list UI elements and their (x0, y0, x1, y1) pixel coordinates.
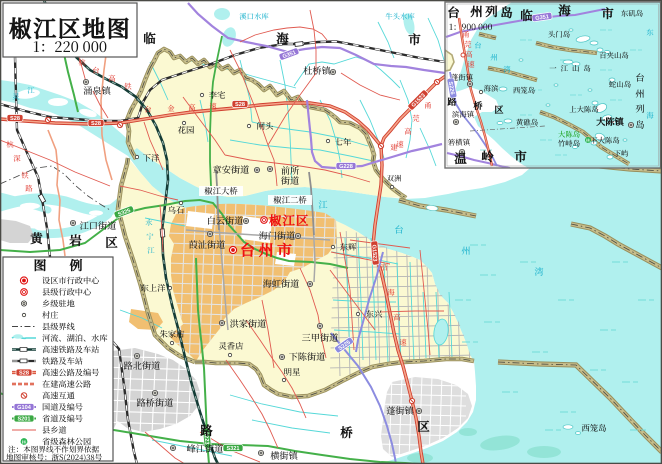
svg-text:三甲街道: 三甲街道 (302, 330, 339, 344)
svg-text:杭: 杭 (78, 57, 86, 68)
svg-text:箬横镇: 箬横镇 (448, 137, 471, 148)
svg-text:地图审核号：浙S(2024)38号: 地图审核号：浙S(2024)38号 (6, 452, 103, 463)
svg-text:在建高速公路: 在建高速公路 (42, 379, 91, 390)
svg-text:灵香店: 灵香店 (218, 340, 244, 352)
svg-text:黄: 黄 (30, 229, 44, 247)
svg-text:海: 海 (276, 29, 290, 47)
svg-text:G228: G228 (339, 164, 353, 170)
svg-text:椒江区: 椒江区 (269, 211, 310, 229)
svg-text:横街镇: 横街镇 (270, 448, 298, 462)
svg-text:甬: 甬 (424, 100, 431, 111)
svg-text:海滨: 海滨 (484, 83, 499, 94)
svg-text:大陈镇: 大陈镇 (596, 114, 624, 128)
svg-text:白云街道: 白云街道 (207, 213, 244, 227)
svg-text:上大陈岛: 上大陈岛 (569, 104, 599, 115)
svg-text:S201: S201 (17, 417, 30, 423)
svg-text:高: 高 (404, 126, 412, 137)
svg-text:李宅: 李宅 (209, 89, 226, 101)
svg-text:蛇山岛: 蛇山岛 (609, 79, 631, 90)
svg-text:S28: S28 (91, 121, 101, 127)
svg-text:永: 永 (145, 217, 153, 228)
svg-text:花园: 花园 (178, 124, 195, 136)
svg-text:金: 金 (167, 103, 175, 114)
svg-text:下洋: 下洋 (143, 152, 160, 164)
svg-text:下屿: 下屿 (614, 148, 629, 159)
svg-text:东: 东 (646, 27, 654, 38)
svg-text:头门岛: 头门岛 (548, 29, 570, 40)
svg-text:列: 列 (635, 101, 644, 115)
svg-text:桥: 桥 (473, 98, 483, 112)
svg-text:高速铁路及车站: 高速铁路及车站 (42, 345, 99, 356)
svg-text:下大陈岛: 下大陈岛 (590, 135, 620, 146)
svg-text:七年: 七年 (335, 136, 352, 148)
svg-text:海虹街道: 海虹街道 (263, 276, 300, 290)
svg-text:S28: S28 (10, 116, 20, 122)
svg-text:岛: 岛 (635, 117, 644, 131)
svg-text:宁: 宁 (146, 231, 154, 242)
svg-text:速: 速 (399, 337, 407, 348)
svg-text:设区市行政中心: 设区市行政中心 (42, 276, 99, 287)
svg-text:葭沚街道: 葭沚街道 (189, 237, 226, 251)
svg-text:江: 江 (27, 85, 35, 96)
svg-text:高速互通: 高速互通 (42, 391, 75, 402)
svg-text:下陈街道: 下陈街道 (289, 349, 326, 363)
svg-text:1：900 000: 1：900 000 (449, 21, 493, 33)
svg-text:台: 台 (635, 70, 644, 84)
svg-text:海: 海 (646, 110, 654, 121)
svg-text:1：220 000: 1：220 000 (33, 36, 107, 57)
svg-text:湾: 湾 (534, 264, 543, 278)
svg-text:江: 江 (147, 245, 155, 256)
svg-text:闸头: 闸头 (257, 120, 274, 132)
svg-text:西笼岛: 西笼岛 (581, 422, 606, 434)
svg-text:江口街道: 江口街道 (80, 218, 117, 232)
svg-text:峰江街道: 峰江街道 (187, 441, 224, 455)
svg-text:涌泉镇: 涌泉镇 (83, 83, 111, 97)
svg-text:湾: 湾 (503, 64, 511, 75)
svg-text:S321: S321 (226, 446, 239, 452)
svg-text:高: 高 (393, 312, 401, 323)
svg-text:州: 州 (461, 243, 470, 257)
svg-text:东矶岛: 东矶岛 (621, 8, 643, 19)
svg-text:S28: S28 (235, 102, 245, 108)
svg-text:省道及编号: 省道及编号 (42, 414, 83, 425)
svg-text:温: 温 (454, 149, 468, 167)
svg-text:速: 速 (209, 101, 217, 112)
svg-text:蓬街镇: 蓬街镇 (386, 403, 414, 417)
svg-text:台: 台 (92, 65, 99, 76)
svg-text:临: 临 (520, 6, 534, 24)
svg-text:G1523: G1523 (370, 244, 377, 261)
svg-text:一江山岛: 一江山岛 (549, 63, 595, 74)
svg-text:县乡道: 县乡道 (42, 425, 67, 436)
svg-text:椒江大桥: 椒江大桥 (204, 185, 238, 197)
svg-text:区: 区 (494, 102, 504, 116)
svg-text:高: 高 (108, 73, 116, 84)
svg-text:乌石: 乌石 (168, 204, 185, 216)
svg-text:临: 临 (143, 29, 157, 47)
svg-text:台: 台 (474, 40, 481, 51)
svg-text:图: 图 (33, 255, 46, 274)
svg-text:区: 区 (105, 233, 119, 251)
svg-text:高速公路及编号: 高速公路及编号 (42, 368, 99, 379)
svg-text:河流、湖泊、水库: 河流、湖泊、水库 (42, 333, 108, 344)
svg-text:台: 台 (144, 104, 151, 115)
svg-text:竹峙岛: 竹峙岛 (558, 138, 580, 149)
svg-text:海: 海 (387, 287, 395, 298)
svg-text:州: 州 (635, 86, 644, 100)
svg-text:铁路及车站: 铁路及车站 (42, 356, 83, 367)
svg-text:莞: 莞 (412, 113, 420, 124)
svg-text:G104: G104 (17, 405, 32, 411)
svg-text:乡级驻地: 乡级驻地 (42, 299, 75, 310)
svg-text:街道: 街道 (281, 173, 299, 187)
svg-text:村庄: 村庄 (42, 310, 58, 321)
svg-text:杭: 杭 (6, 139, 14, 150)
svg-text:海: 海 (558, 1, 572, 19)
svg-text:西笼岛: 西笼岛 (513, 85, 535, 96)
svg-text:例: 例 (68, 255, 82, 274)
svg-text:黄礁岛: 黄礁岛 (516, 117, 538, 128)
svg-text:县级界线: 县级界线 (42, 322, 76, 333)
svg-text:深: 深 (13, 153, 21, 164)
svg-text:列: 列 (485, 2, 499, 20)
svg-text:州: 州 (490, 52, 497, 63)
svg-text:滨海镇: 滨海镇 (452, 109, 475, 120)
svg-text:章安街道: 章安街道 (213, 162, 250, 176)
svg-text:市: 市 (601, 4, 615, 22)
svg-text:国道及编号: 国道及编号 (42, 402, 83, 413)
svg-text:市: 市 (408, 30, 422, 48)
svg-text:台: 台 (394, 222, 403, 236)
svg-text:东兴: 东兴 (366, 308, 383, 320)
svg-text:灵: 灵 (12, 91, 20, 102)
svg-text:江: 江 (318, 197, 328, 211)
svg-text:东上洋: 东上洋 (140, 282, 166, 294)
svg-text:台: 台 (447, 3, 461, 21)
svg-text:路北街道: 路北街道 (124, 358, 161, 372)
svg-text:东辉: 东辉 (340, 241, 357, 253)
svg-text:岩: 岩 (69, 231, 83, 249)
svg-text:双洲: 双洲 (387, 173, 402, 184)
svg-text:高: 高 (188, 102, 196, 113)
svg-text:百夹山岛: 百夹山岛 (599, 50, 629, 61)
svg-text:速: 速 (467, 59, 475, 70)
svg-text:桥: 桥 (340, 423, 354, 441)
svg-text:沿: 沿 (380, 262, 388, 273)
svg-text:速: 速 (396, 139, 404, 150)
svg-text:溪口水库: 溪口水库 (239, 11, 269, 22)
svg-text:路: 路 (199, 421, 214, 439)
svg-text:岛: 岛 (500, 3, 514, 21)
svg-text:州: 州 (470, 2, 484, 20)
svg-text:椒江二桥: 椒江二桥 (273, 194, 307, 206)
svg-text:S28: S28 (19, 371, 29, 377)
svg-text:洪家街道: 洪家街道 (230, 316, 267, 330)
svg-text:杜桥镇: 杜桥镇 (303, 63, 331, 77)
svg-text:牛头水库: 牛头水库 (385, 11, 415, 22)
svg-text:铁: 铁 (124, 81, 132, 92)
svg-text:区: 区 (417, 417, 431, 435)
svg-text:路: 路 (25, 183, 33, 194)
svg-text:朱家店: 朱家店 (159, 328, 185, 340)
svg-text:明星: 明星 (284, 366, 301, 378)
svg-text:路桥街道: 路桥街道 (137, 395, 174, 409)
svg-text:铁: 铁 (21, 170, 29, 181)
svg-text:县级行政中心: 县级行政中心 (42, 287, 91, 298)
svg-text:岭: 岭 (481, 147, 495, 165)
svg-text:市: 市 (514, 147, 528, 165)
svg-text:台州市: 台州市 (240, 240, 296, 261)
